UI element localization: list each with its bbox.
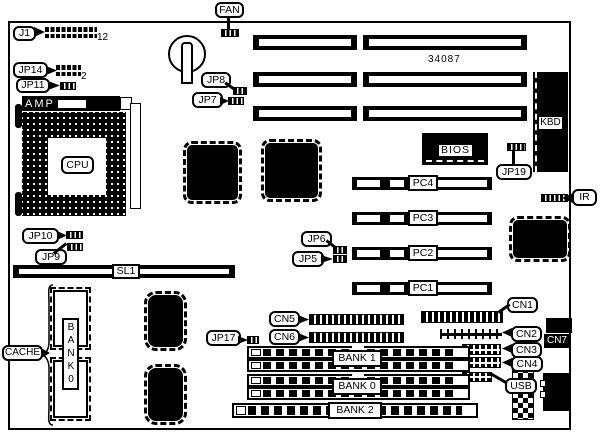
board-part-number: 34087 [428, 55, 461, 65]
callout-cpu-label: CPU [66, 160, 88, 171]
callout-jp11-label: JP11 [21, 80, 44, 91]
bank0-label-tag: BANK 0 [332, 378, 382, 395]
sl1-label: SL1 [117, 266, 136, 277]
callout-cpu: CPU [61, 156, 94, 174]
callout-fan-label: FAN [219, 5, 239, 16]
callout-usb: USB [505, 378, 537, 394]
bank2-label-tag: BANK 2 [328, 402, 382, 419]
amp-sticker [57, 99, 87, 109]
jp17-jumper [247, 336, 259, 344]
edge-connector [543, 373, 571, 411]
callout-jp11: JP11 [16, 78, 50, 93]
j1-pin-count: 12 [97, 33, 108, 43]
socket-bracket [130, 103, 141, 209]
pc3-label-tag: PC3 [408, 210, 438, 226]
callout-cn2-label: CN2 [516, 329, 537, 340]
callout-cn4: CN4 [511, 356, 543, 372]
bios-label-tag: BIOS [437, 143, 474, 158]
edge-connector-notch-1 [540, 380, 546, 387]
pc1-label: PC1 [413, 283, 433, 294]
isa-slot-3-short [253, 106, 357, 121]
edge-connector-notch-2 [540, 391, 546, 398]
callout-j1-label: J1 [19, 28, 30, 39]
callout-jp5: JP5 [292, 251, 324, 267]
jp14-pin-count: 2 [81, 72, 87, 82]
callout-cn4-label: CN4 [516, 359, 537, 370]
callout-cn6: CN6 [269, 329, 300, 345]
callout-jp17: JP17 [206, 330, 241, 346]
callout-cn5: CN5 [269, 311, 300, 327]
fan-connector [221, 29, 239, 37]
sl1-label-tag: SL1 [112, 264, 140, 279]
amp-label: AMP [25, 99, 55, 110]
io-controller-qfp [513, 220, 567, 258]
jp9-jumper [67, 243, 83, 251]
cache-bank0-tag: BANK0 [62, 318, 79, 390]
pc4-label-tag: PC4 [408, 175, 438, 191]
cn7-connector: CN7 [544, 334, 570, 348]
jp7-jumper [228, 97, 244, 105]
cn7-label: CN7 [547, 336, 567, 346]
callout-ir-label: IR [579, 192, 590, 203]
jp11-jumper [60, 82, 76, 90]
isa-slot-1-short [253, 35, 357, 50]
callout-jp14: JP14 [13, 62, 48, 78]
jp19-jumper [507, 143, 526, 151]
isa-slot-2-long [363, 72, 527, 87]
kbd-label-tag: KBD [537, 115, 564, 131]
callout-jp10: JP10 [22, 228, 59, 244]
bracket-tab-bottom [15, 192, 22, 216]
callout-jp9: JP9 [35, 249, 67, 265]
cn2-header [440, 329, 502, 339]
callout-cn1-label: CN1 [512, 300, 533, 311]
jp19-pointer-icon [512, 151, 515, 165]
sram-chip-2 [148, 368, 183, 421]
callout-cn3-label: CN3 [516, 345, 537, 356]
chipset-qfp-2 [265, 143, 318, 198]
callout-jp7: JP7 [192, 92, 223, 108]
cache-bank0-label: BANK0 [66, 322, 76, 387]
callout-usb-label: USB [510, 381, 532, 392]
j1-header [45, 27, 97, 38]
pc2-label-tag: PC2 [408, 245, 438, 261]
cn6-header [309, 332, 404, 343]
bracket-tab-top [15, 104, 22, 128]
bank0-label: BANK 0 [338, 381, 375, 392]
callout-jp8-label: JP8 [207, 75, 225, 86]
jp10-jumper [66, 231, 83, 239]
callout-cache: CACHE [2, 345, 43, 361]
callout-jp9-label: JP9 [42, 252, 60, 263]
callout-jp14-label: JP14 [19, 65, 43, 76]
callout-cn5-label: CN5 [274, 314, 295, 325]
cn1-header [421, 311, 503, 323]
fan-pointer-icon [227, 17, 230, 30]
chipset-qfp-1 [187, 145, 238, 200]
isa-slot-3-long [363, 106, 527, 121]
callout-jp19: JP19 [496, 164, 532, 180]
isa-slot-1-long [363, 35, 527, 50]
callout-cn1: CN1 [507, 297, 538, 313]
pc2-label: PC2 [413, 248, 433, 259]
sram-chip-1 [148, 295, 183, 347]
callout-jp17-label: JP17 [212, 333, 236, 344]
callout-cn6-label: CN6 [274, 332, 295, 343]
cn7-connector-upper [546, 318, 572, 333]
callout-jp10-label: JP10 [29, 231, 53, 242]
callout-jp6-label: JP6 [307, 234, 325, 245]
callout-cn2: CN2 [511, 326, 542, 342]
jp5-jumper [333, 255, 347, 263]
bank1-label: BANK 1 [338, 353, 375, 364]
crystal-icon [181, 42, 193, 84]
callout-ir: IR [572, 189, 597, 206]
bios-label: BIOS [441, 145, 470, 156]
cn5-header [309, 314, 404, 325]
isa-slot-2-short [253, 72, 357, 87]
jp14-header [56, 65, 81, 76]
callout-cache-label: CACHE [5, 348, 40, 358]
bank2-label: BANK 2 [336, 405, 373, 416]
callout-jp5-label: JP5 [299, 254, 317, 265]
pc3-label: PC3 [413, 213, 433, 224]
callout-fan: FAN [215, 2, 244, 18]
bank1-label-tag: BANK 1 [332, 350, 382, 367]
motherboard-diagram: J1 12 FAN JP14 2 JP11 JP8 JP7 AMP CPU 34… [0, 0, 600, 436]
callout-jp7-label: JP7 [198, 95, 216, 106]
pc1-label-tag: PC1 [408, 280, 438, 296]
kbd-label: KBD [540, 118, 561, 128]
pc4-label: PC4 [413, 178, 433, 189]
callout-j1: J1 [13, 26, 36, 41]
callout-jp19-label: JP19 [502, 167, 526, 178]
